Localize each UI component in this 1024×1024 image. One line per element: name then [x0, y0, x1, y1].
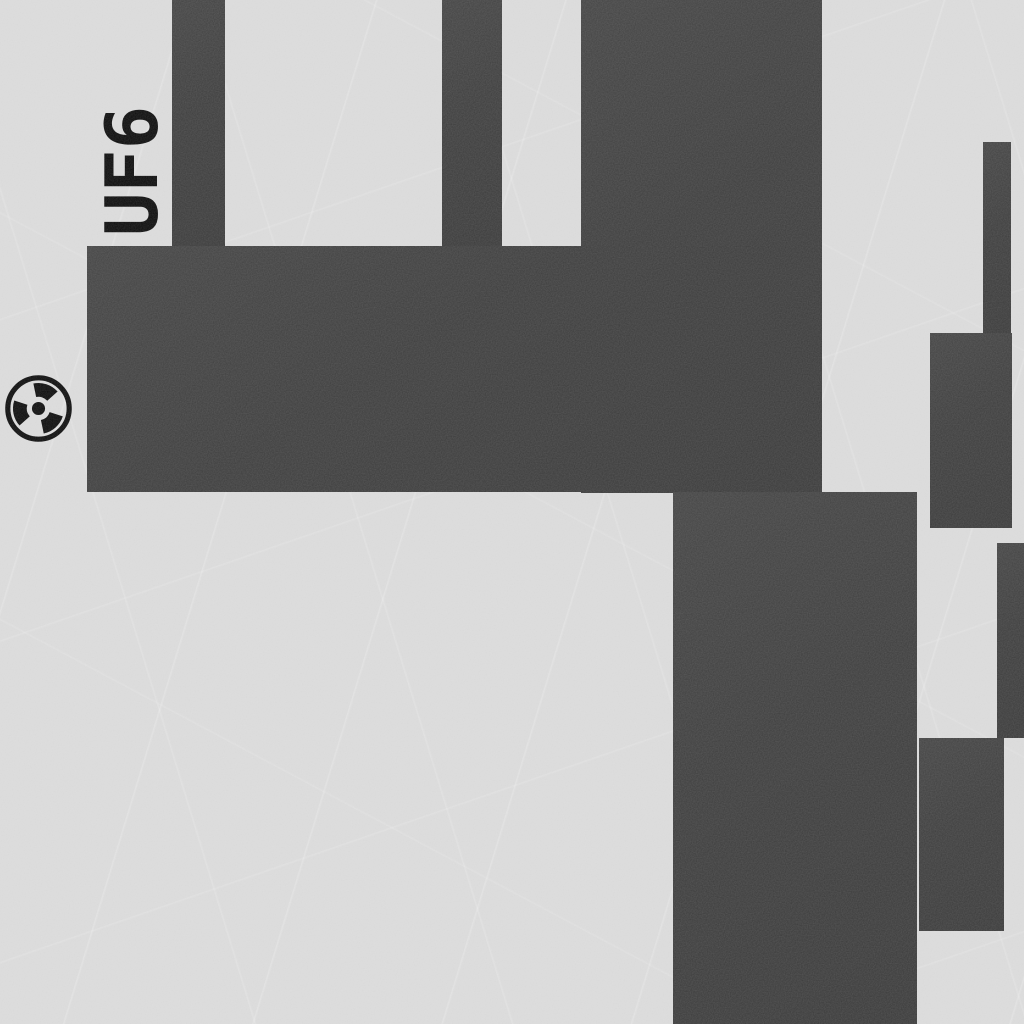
dark-zone-horizontal-band — [87, 246, 822, 492]
uf6-zone-label: UF6 — [101, 96, 165, 236]
dark-zone-right-block-upper — [930, 333, 1012, 528]
dark-zone-main-column — [673, 492, 917, 1024]
uf6-zone-label-text: UF6 — [101, 96, 165, 236]
dark-zone-top-bar-middle — [442, 0, 502, 248]
facility-map-canvas: UF6 — [0, 0, 1024, 1024]
dark-zone-right-thin-bar — [983, 142, 1011, 334]
dark-zone-top-bar-left — [172, 0, 225, 248]
dark-zone-right-block-lower — [919, 738, 1004, 931]
radiation-icon — [4, 374, 73, 443]
dark-zone-right-edge-bar — [997, 543, 1024, 738]
